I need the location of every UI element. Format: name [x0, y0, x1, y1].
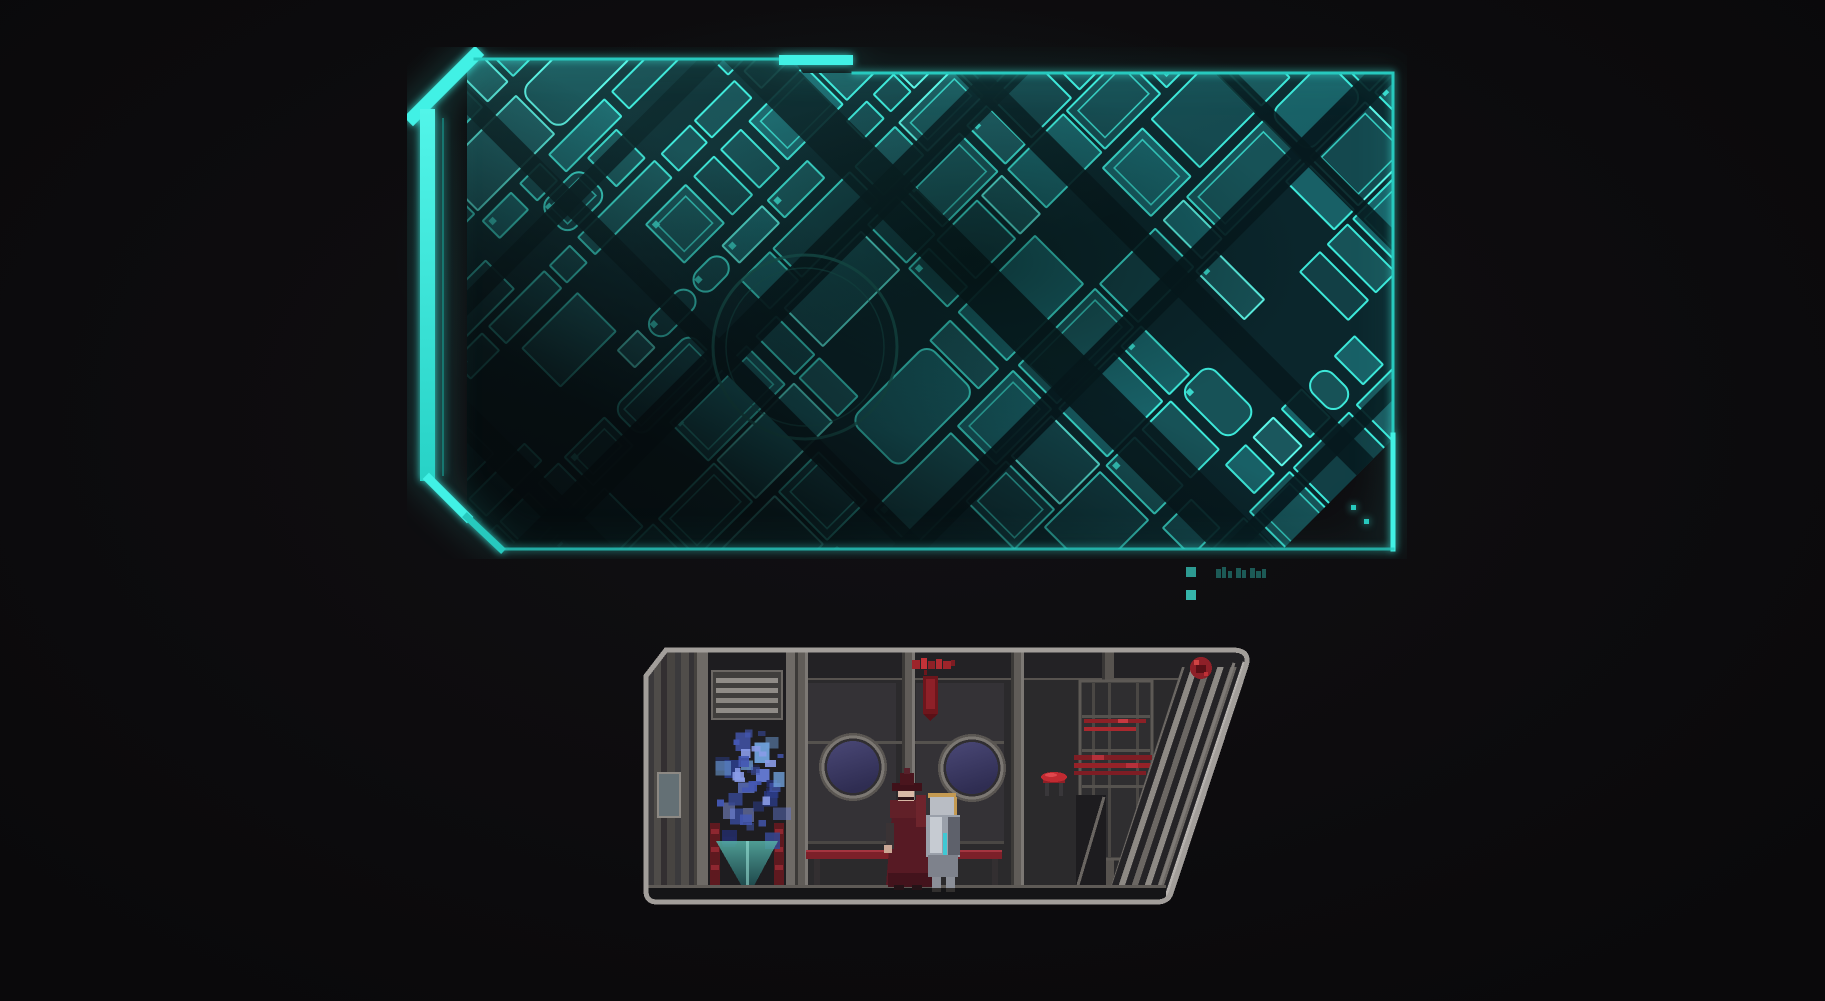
- legend-row[interactable]: [1186, 589, 1268, 601]
- map-legend: [1186, 566, 1268, 612]
- ship-interior-scene: [640, 645, 1260, 907]
- hologram-alcove[interactable]: [694, 651, 800, 903]
- map-content: [407, 47, 1407, 559]
- legend-label-pixels: [1216, 566, 1268, 578]
- legend-row[interactable]: [1186, 566, 1268, 578]
- red-emblem: [1190, 657, 1212, 679]
- red-banner: [923, 676, 938, 721]
- holographic-city-map[interactable]: [407, 47, 1407, 559]
- legend-swatch: [1186, 567, 1196, 577]
- porthole-left: [819, 733, 887, 801]
- small-window: [658, 773, 680, 817]
- game-viewport: [0, 0, 1825, 1001]
- left-hull-panels: [646, 651, 696, 903]
- porthole-right: [938, 734, 1006, 802]
- legend-swatch: [1186, 590, 1196, 600]
